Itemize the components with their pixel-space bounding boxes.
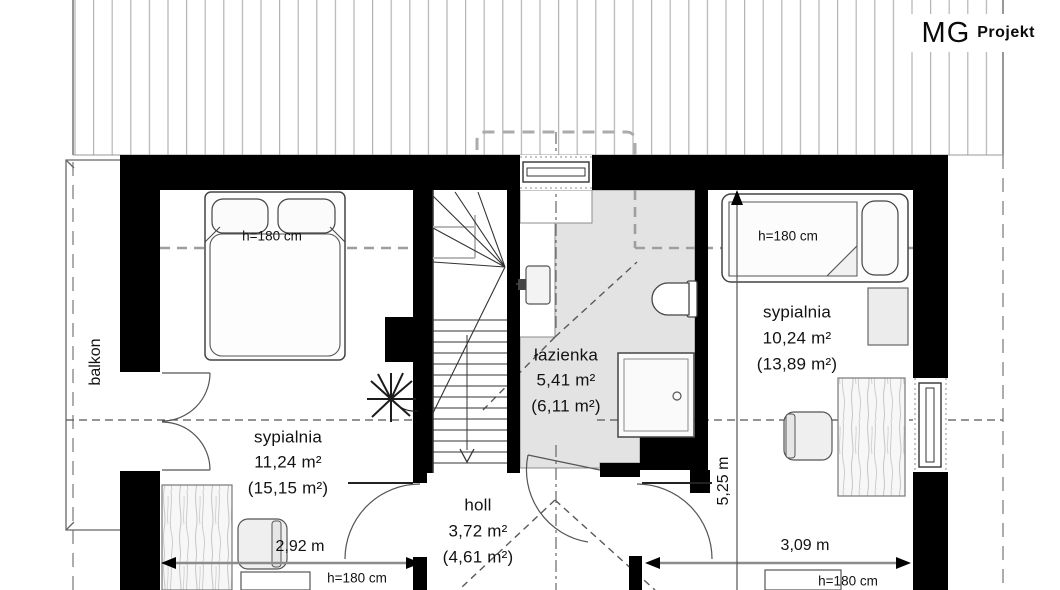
stairs-down-arrow: [460, 449, 474, 462]
window-right: [913, 378, 948, 472]
double-bed: [205, 192, 345, 360]
dimension-label-vertical: 5,25 m: [715, 457, 733, 506]
desk-left: [162, 485, 232, 590]
room-label-sypialnia-right-area: 10,24 m²: [763, 326, 832, 351]
desk-right: [838, 378, 905, 496]
height-label-bed-left: h=180 cm: [242, 229, 302, 244]
room-label-sypialnia-left-area: 11,24 m²: [254, 450, 321, 475]
mg-projekt-logo: MG Projekt: [905, 14, 1060, 52]
room-label-holl-area-gross: (4,61 m²): [443, 545, 514, 570]
door-right-bedroom: [637, 484, 712, 559]
room-label-sypialnia-right-area-gross: (13,89 m²): [757, 352, 837, 377]
height-label-bottom-left: h=180 cm: [327, 571, 387, 586]
height-label-bottom-right: h=180 cm: [818, 574, 878, 589]
room-label-lazienka-area: 5,41 m²: [536, 368, 595, 393]
dresser-left: [241, 572, 310, 590]
stairs: [433, 190, 507, 473]
dimension-line-right: [645, 557, 911, 569]
balcony-label: balkon: [87, 338, 105, 385]
floorplan-drawing: [0, 0, 1060, 590]
chair-right: [784, 412, 832, 460]
balcony-doors: [162, 373, 210, 470]
nightstand: [868, 288, 908, 345]
window-top: [520, 155, 592, 190]
door-left-bedroom: [345, 484, 420, 559]
dimension-label-right: 3,09 m: [781, 537, 830, 555]
toilet: [652, 281, 697, 317]
logo-projekt: Projekt: [977, 24, 1035, 42]
roof-hatch: [73, 0, 1003, 155]
logo-mg: MG: [922, 17, 971, 50]
height-label-bed-right: h=180 cm: [758, 229, 818, 244]
room-label-sypialnia-right-name: sypialnia: [763, 300, 831, 325]
room-label-sypialnia-left-name: sypialnia: [254, 425, 322, 450]
plant: [367, 373, 418, 422]
room-label-holl-area: 3,72 m²: [448, 519, 507, 544]
room-label-holl-name: holl: [464, 493, 491, 518]
dimension-label-left: 2,92 m: [276, 538, 325, 556]
room-label-lazienka-area-gross: (6,11 m²): [531, 394, 601, 419]
floor-plan: MG Projekt sypialnia 11,24 m² (15,15 m²)…: [0, 0, 1060, 590]
shower: [618, 353, 694, 437]
room-label-sypialnia-left-area-gross: (15,15 m²): [248, 476, 328, 501]
washbasin: [516, 266, 550, 304]
room-label-lazienka-name: łazienka: [534, 343, 598, 368]
